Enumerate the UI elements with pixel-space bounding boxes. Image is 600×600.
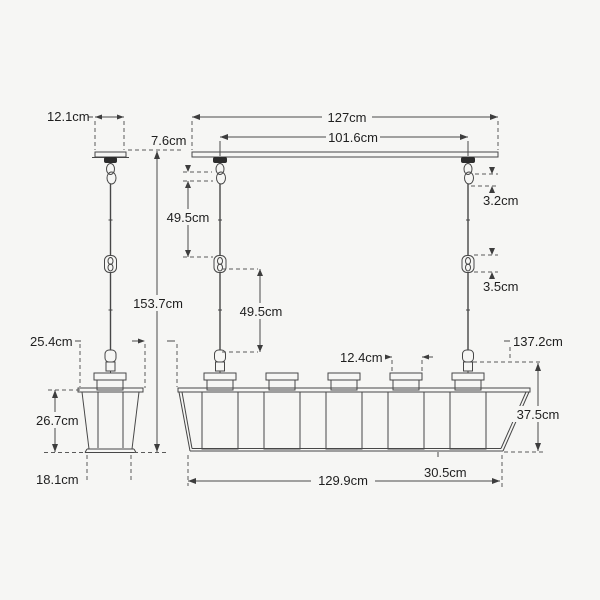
background xyxy=(0,0,600,600)
dim-label-body-height: 37.5cm xyxy=(517,407,560,422)
dim-label-bar-length: 127cm xyxy=(327,110,366,125)
dim-label-body-length: 129.9cm xyxy=(318,473,368,488)
dim-label-upper-rod: 49.5cm xyxy=(167,210,210,225)
dim-label-cup-width: 12.4cm xyxy=(340,350,383,365)
dim-label-coupler-detail: 3.5cm xyxy=(483,279,518,294)
dimension-diagram: 12.1cm 7.6cm 127cm 101.6cm xyxy=(0,0,600,600)
dim-label-canopy-detail: 7.6cm xyxy=(151,133,186,148)
dim-label-canopy-width: 12.1cm xyxy=(47,109,90,124)
bar-knob-left xyxy=(213,157,227,163)
dim-label-suspension-spacing: 101.6cm xyxy=(328,130,378,145)
dim-label-shade-bottom-width: 18.1cm xyxy=(36,472,79,487)
dim-label-end-section: 30.5cm xyxy=(424,465,467,480)
dim-label-shade-height: 26.7cm xyxy=(36,413,79,428)
canopy-knob xyxy=(104,157,117,163)
dim-label-overall-height: 153.7cm xyxy=(133,296,183,311)
dim-label-hook-detail: 3.2cm xyxy=(483,193,518,208)
dim-label-shade-top-width: 25.4cm xyxy=(30,334,73,349)
bar-knob-right xyxy=(461,157,475,163)
diagram-canvas: 12.1cm 7.6cm 127cm 101.6cm xyxy=(0,0,600,600)
dim-label-drop-to-body: 137.2cm xyxy=(513,334,563,349)
dim-label-lower-rod: 49.5cm xyxy=(240,304,283,319)
